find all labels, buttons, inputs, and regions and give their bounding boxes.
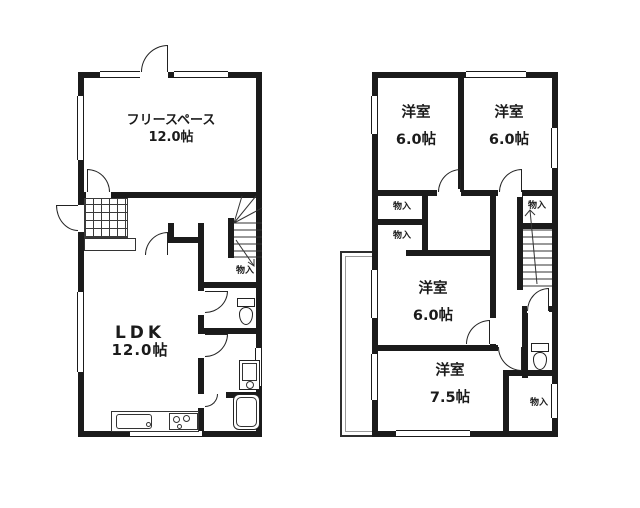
f1-door-toilet	[205, 291, 228, 313]
f2-storage3-label: 物入	[523, 201, 551, 212]
f2-wall-top	[372, 72, 558, 78]
f2-door-bottomroom	[498, 347, 522, 371]
f2-wall-bottomroom-top	[372, 345, 498, 351]
f1-door-washroom	[205, 334, 228, 357]
f1-gap-toilet-door	[197, 291, 205, 315]
toilet-tank-icon-f1	[237, 298, 255, 307]
room-middle-name: 洋室	[393, 276, 473, 303]
f2-window-bottom	[396, 430, 470, 437]
room-top-right-label: 洋室 6.0帖	[469, 100, 549, 154]
f1-window-top-1	[100, 71, 140, 78]
stove-burner-1	[173, 416, 180, 423]
room-middle-label: 洋室 6.0帖	[393, 276, 473, 330]
f2-window-right-1	[551, 128, 558, 168]
stove-burner-3	[177, 424, 182, 429]
f1-gap-bath-door	[197, 394, 205, 408]
f2-storage4-label: 物入	[525, 398, 553, 409]
f2-wall-toilet-left	[522, 312, 528, 378]
room-bottom-size: 7.5帖	[410, 385, 490, 412]
toilet-tank-icon-f2	[531, 343, 549, 352]
f1-wall-hall-v	[168, 223, 174, 243]
stove-burner-2	[183, 415, 190, 422]
f2-door-room-tl	[438, 169, 461, 192]
f2-gap-midroom-door	[489, 318, 497, 344]
f2-window-left-2	[371, 270, 378, 318]
toilet-bowl-icon-f2	[533, 352, 547, 370]
room-middle-size: 6.0帖	[393, 303, 473, 330]
f2-wall-storage-mid	[372, 219, 428, 225]
f2-wall-closet-left	[503, 376, 509, 431]
bathtub-inner	[236, 397, 257, 427]
room-bottom-name: 洋室	[410, 358, 490, 385]
f1-storage-label: 物入	[231, 266, 259, 277]
f1-gap-washroom-door	[197, 334, 205, 358]
f2-storage2-label: 物入	[388, 231, 416, 242]
f1-door-genkan-freespace	[87, 169, 110, 192]
toilet-bowl-icon-f1	[239, 307, 253, 325]
f2-window-left-3	[371, 354, 378, 400]
genkan-step	[84, 238, 136, 251]
room-top-left-name: 洋室	[376, 100, 456, 127]
room-top-left-size: 6.0帖	[376, 127, 456, 154]
f2-window-top	[466, 71, 526, 78]
f1-door-bathroom	[205, 394, 218, 407]
f1-gap-top-door	[140, 71, 168, 79]
free-space-name: フリースペース	[116, 113, 226, 130]
ldk-name: LDK	[95, 325, 185, 342]
kitchen-faucet	[146, 422, 151, 427]
room-bottom-label: 洋室 7.5帖	[410, 358, 490, 412]
free-space-size: 12.0帖	[116, 130, 226, 147]
free-space-label: フリースペース 12.0帖	[116, 113, 226, 146]
f2-storage1-label: 物入	[388, 202, 416, 213]
f1-window-left-1	[77, 96, 84, 160]
washbasin-inner	[242, 363, 257, 381]
balcony-inner-line	[345, 256, 374, 432]
genkan-tile-grid	[84, 198, 128, 238]
f1-window-left-2	[77, 292, 84, 372]
f1-door-entrance	[56, 205, 78, 231]
f2-door-room-tr	[499, 169, 522, 192]
f1-door-freespace-top	[141, 45, 168, 72]
floorplan-canvas: フリースペース 12.0帖 LDK 12.0帖 物入	[0, 0, 640, 508]
washbasin-drain	[246, 381, 254, 389]
ldk-size: 12.0帖	[95, 342, 185, 359]
room-top-right-name: 洋室	[469, 100, 549, 127]
f1-door-hall-ldk	[145, 232, 168, 255]
ldk-label: LDK 12.0帖	[95, 325, 185, 358]
f2-wall-storage-right	[422, 196, 428, 256]
f1-window-top-2	[174, 71, 228, 78]
f2-wall-closet-top	[503, 370, 558, 376]
room-top-left-label: 洋室 6.0帖	[376, 100, 456, 154]
room-top-right-size: 6.0帖	[469, 127, 549, 154]
f2-wall-midroom-top	[406, 250, 496, 256]
